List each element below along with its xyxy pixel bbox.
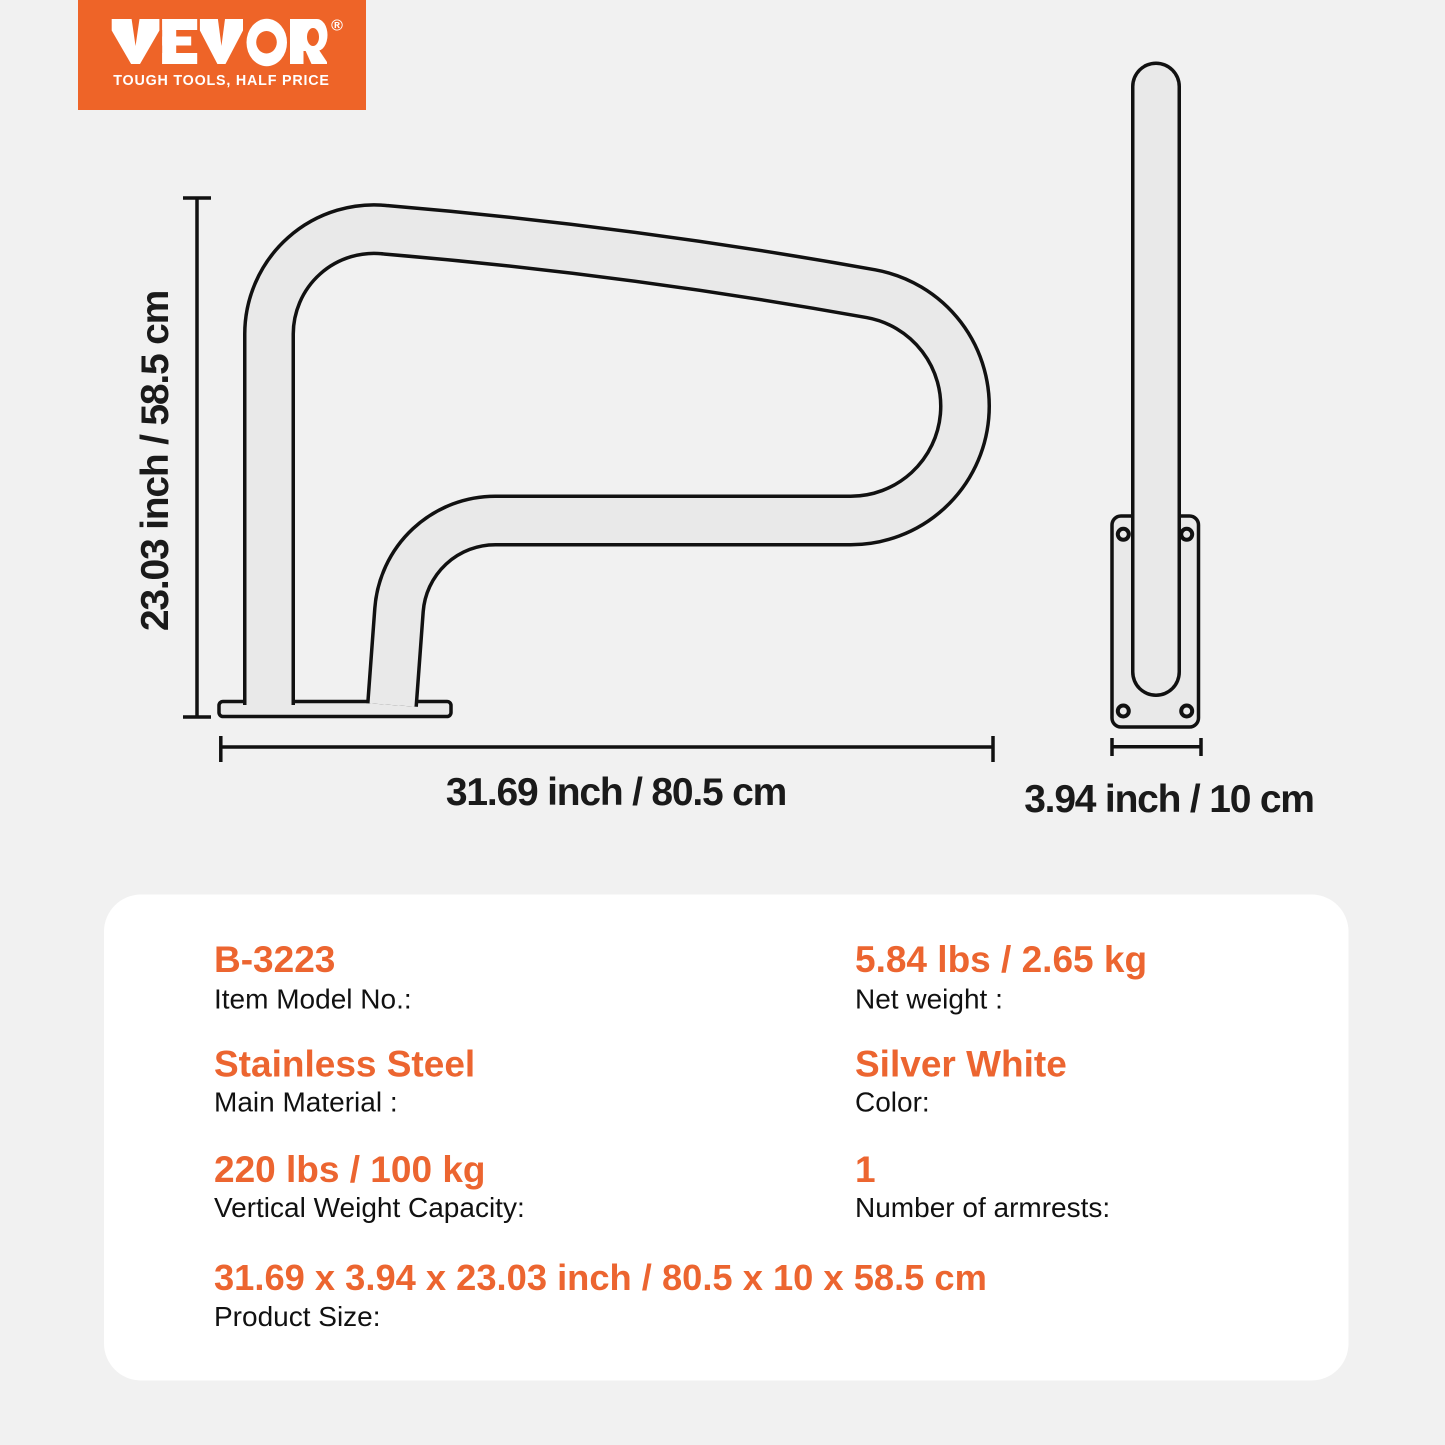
svg-text:Number of armrests:: Number of armrests: (855, 1192, 1110, 1223)
svg-text:Vertical Weight Capacity:: Vertical Weight Capacity: (214, 1192, 525, 1223)
svg-text:Main Material :: Main Material : (214, 1086, 398, 1117)
svg-text:23.03 inch / 58.5 cm: 23.03 inch / 58.5 cm (134, 291, 177, 631)
svg-text:220 lbs / 100 kg: 220 lbs / 100 kg (214, 1149, 486, 1190)
svg-text:Silver White: Silver White (855, 1044, 1067, 1085)
svg-text:Stainless Steel: Stainless Steel (214, 1044, 475, 1085)
svg-text:5.84 lbs / 2.65 kg: 5.84 lbs / 2.65 kg (855, 939, 1147, 980)
svg-text:1: 1 (855, 1149, 876, 1190)
svg-text:Net weight :: Net weight : (855, 983, 1003, 1014)
svg-text:3.94 inch / 10 cm: 3.94 inch / 10 cm (1024, 778, 1314, 821)
svg-text:®: ® (331, 18, 343, 35)
svg-text:B-3223: B-3223 (214, 939, 335, 980)
svg-text:Item Model No.:: Item Model No.: (214, 983, 412, 1014)
svg-text:TOUGH TOOLS, HALF PRICE: TOUGH TOOLS, HALF PRICE (113, 73, 329, 89)
svg-text:Product Size:: Product Size: (214, 1301, 381, 1332)
svg-text:31.69 x 3.94 x 23.03 inch / 80: 31.69 x 3.94 x 23.03 inch / 80.5 x 10 x … (214, 1257, 987, 1298)
svg-text:Color:: Color: (855, 1086, 930, 1117)
svg-text:31.69 inch / 80.5 cm: 31.69 inch / 80.5 cm (446, 771, 786, 814)
